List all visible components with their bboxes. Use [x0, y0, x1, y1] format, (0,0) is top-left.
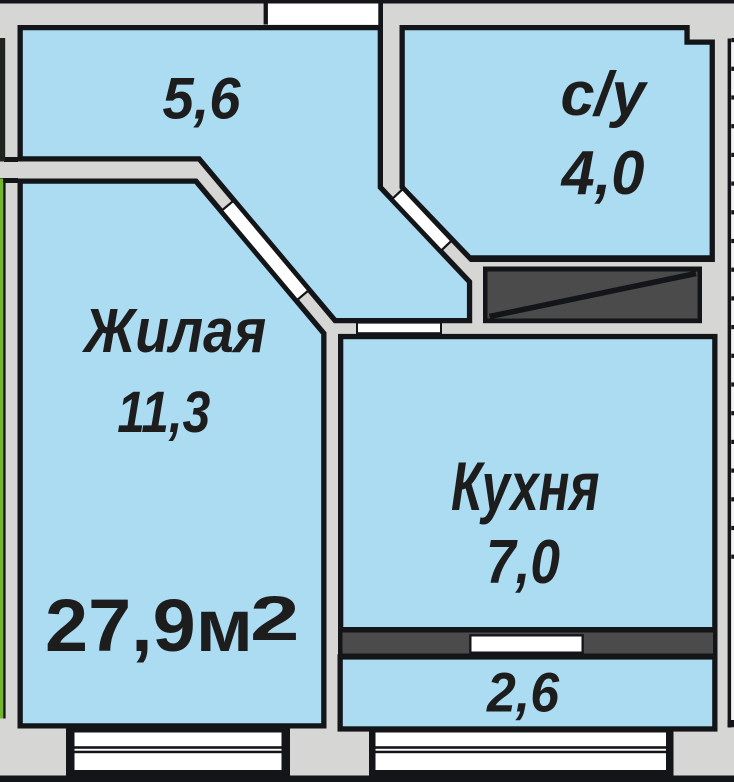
svg-text:11,3: 11,3	[117, 380, 210, 445]
svg-text:Жилая: Жилая	[82, 297, 267, 366]
svg-text:2: 2	[250, 584, 300, 654]
svg-text:с/у: с/у	[561, 60, 649, 129]
svg-text:4,0: 4,0	[560, 139, 645, 208]
svg-text:2,6: 2,6	[486, 661, 560, 724]
svg-text:27,9м: 27,9м	[45, 584, 253, 667]
svg-text:Кухня: Кухня	[451, 448, 599, 525]
svg-text:7,0: 7,0	[486, 528, 560, 597]
svg-text:5,6: 5,6	[163, 67, 242, 132]
